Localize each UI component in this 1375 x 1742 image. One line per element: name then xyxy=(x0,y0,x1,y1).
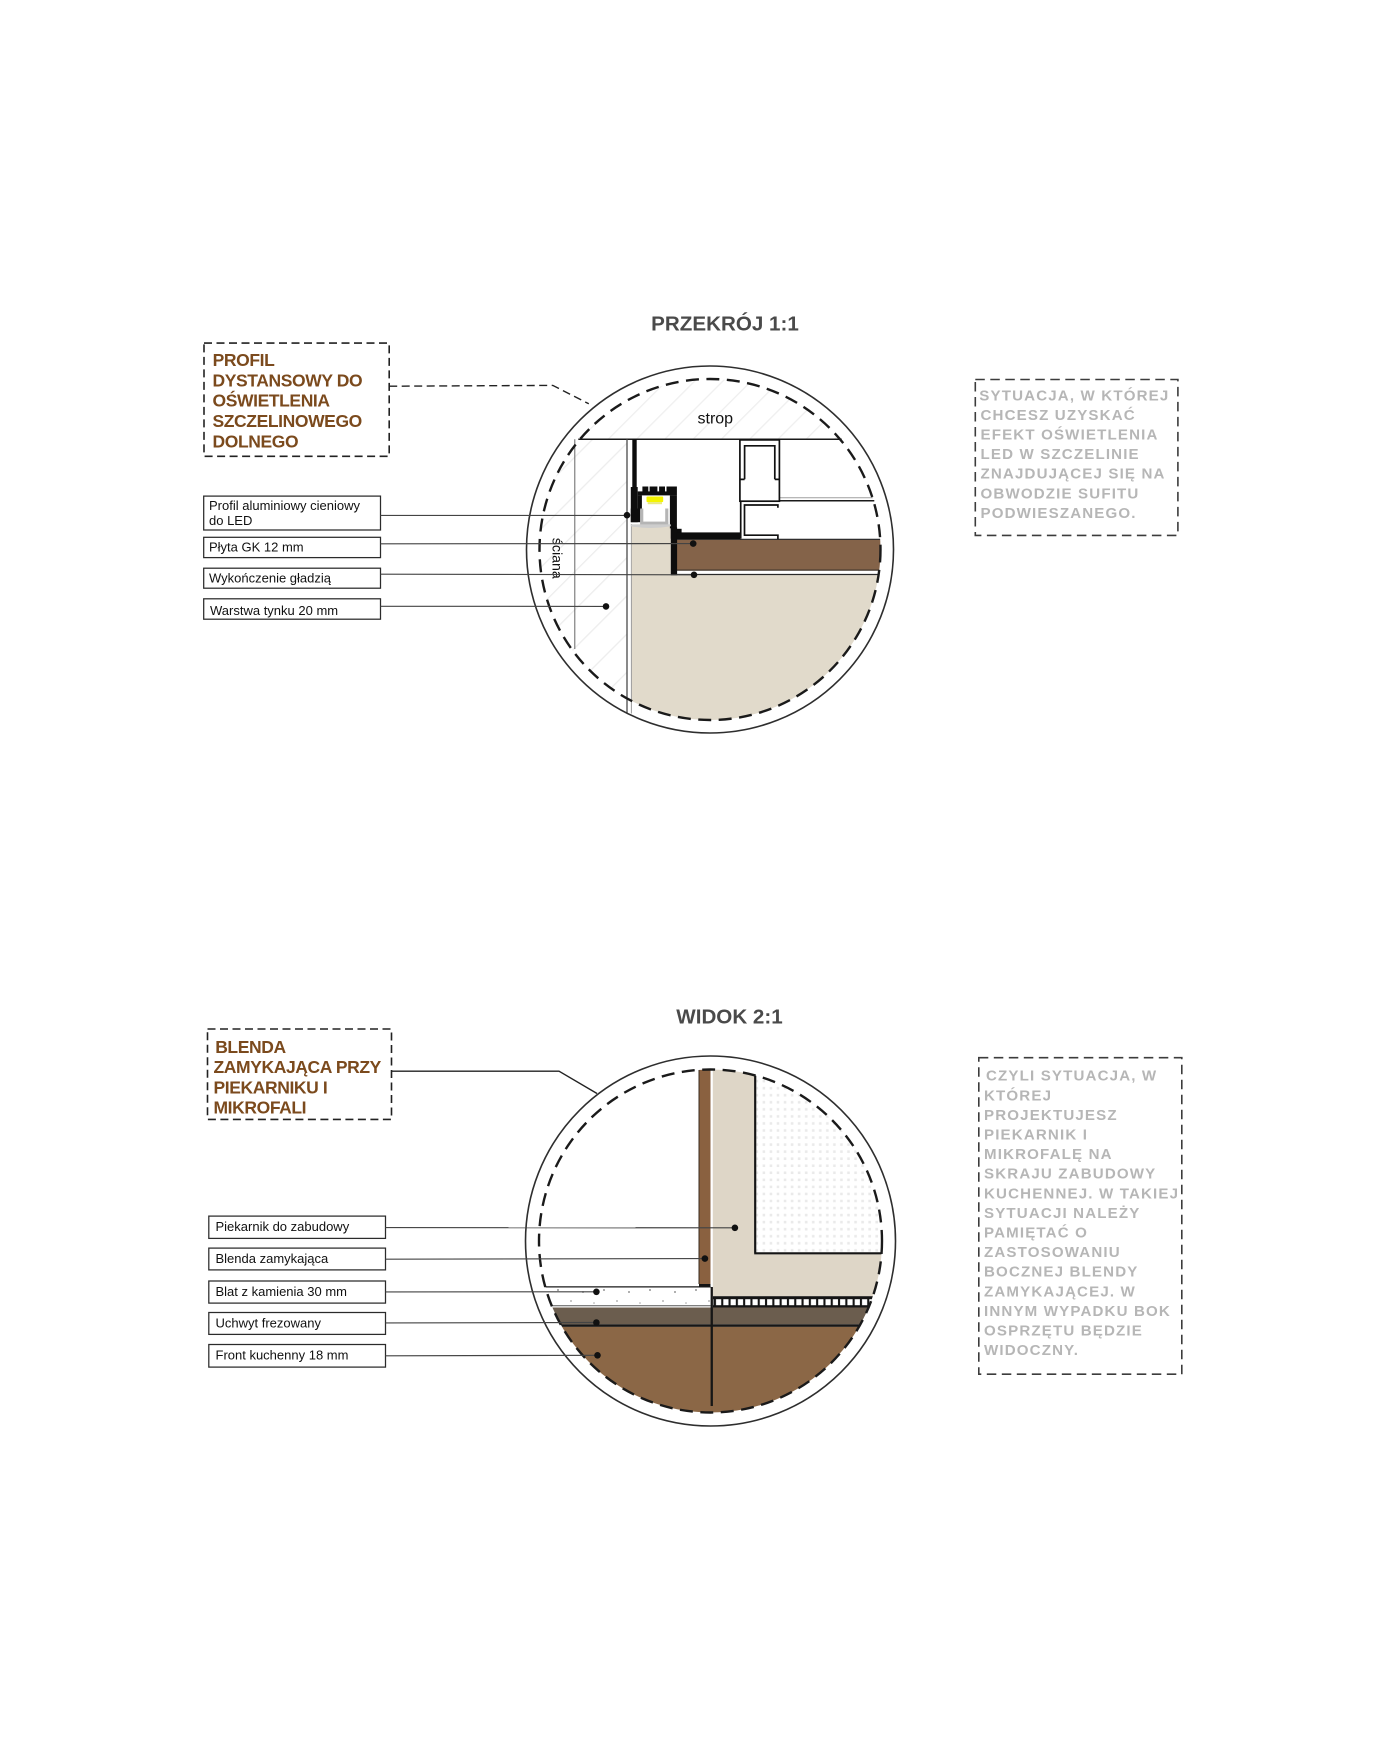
svg-text:PRZEKRÓJ 1:1: PRZEKRÓJ 1:1 xyxy=(651,311,799,335)
svg-text:Front kuchenny 18 mm: Front kuchenny 18 mm xyxy=(216,1348,349,1363)
svg-text:Warstwa tynku 20 mm: Warstwa tynku 20 mm xyxy=(210,603,338,618)
svg-text:WIDOK 2:1: WIDOK 2:1 xyxy=(676,1005,782,1028)
svg-text:Blat z kamienia 30 mm: Blat z kamienia 30 mm xyxy=(216,1284,348,1299)
svg-text:Wykończenie gładzią: Wykończenie gładzią xyxy=(209,571,332,586)
svg-text:Uchwyt frezowany: Uchwyt frezowany xyxy=(216,1315,322,1330)
svg-text:Piekarnik do zabudowy: Piekarnik do zabudowy xyxy=(216,1219,350,1234)
svg-text:Blenda zamykająca: Blenda zamykająca xyxy=(216,1251,329,1266)
svg-text:strop: strop xyxy=(698,410,734,427)
svg-text:Płyta GK 12 mm: Płyta GK 12 mm xyxy=(209,540,304,555)
